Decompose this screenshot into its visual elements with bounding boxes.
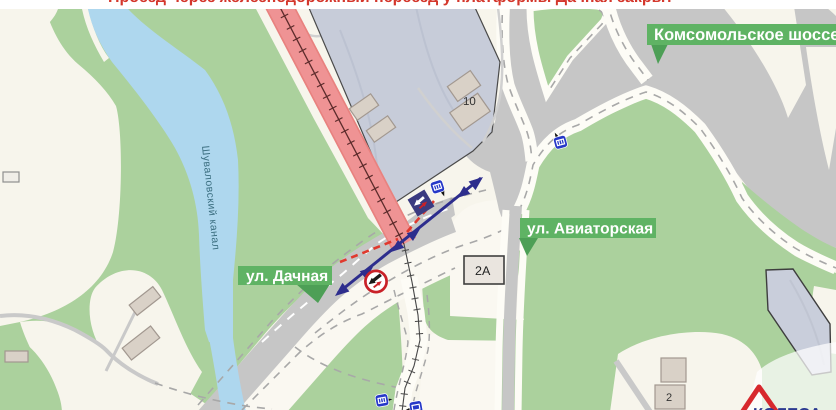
svg-text:ул. Дачная: ул. Дачная <box>246 268 328 285</box>
svg-text:ул. Авиаторская: ул. Авиаторская <box>527 221 653 238</box>
svg-text:КОЛЕСА: КОЛЕСА <box>753 406 822 410</box>
svg-text:Комсомольское шоссе: Комсомольское шоссе <box>654 26 836 44</box>
svg-text:Проезд через железнодорожный п: Проезд через железнодорожный переезд у п… <box>108 0 673 6</box>
svg-text:2А: 2А <box>475 264 491 278</box>
svg-text:10: 10 <box>463 96 476 108</box>
svg-text:2: 2 <box>666 392 672 404</box>
